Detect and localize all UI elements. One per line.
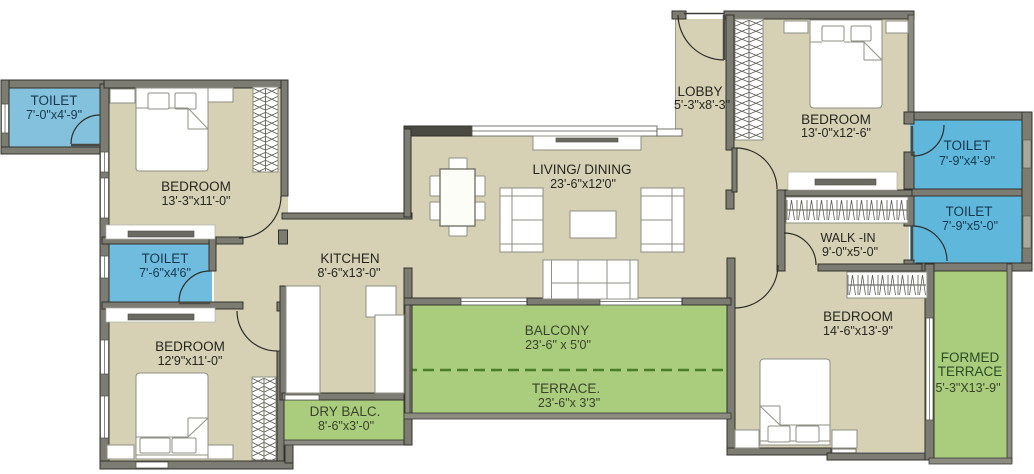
svg-text:23'-6" x 5'0": 23'-6" x 5'0" [525, 338, 591, 352]
svg-text:KITCHEN: KITCHEN [320, 251, 379, 266]
svg-text:23'-6"x 3'3": 23'-6"x 3'3" [538, 396, 600, 410]
svg-text:7'-0"x4'-9": 7'-0"x4'-9" [26, 108, 82, 122]
svg-text:8'-6"x3'-0": 8'-6"x3'-0" [318, 419, 374, 433]
svg-text:7'-6"x4'6": 7'-6"x4'6" [139, 266, 191, 280]
svg-text:12'9"x11'-0": 12'9"x11'-0" [158, 354, 223, 368]
svg-text:BEDROOM: BEDROOM [823, 309, 893, 324]
svg-text:BEDROOM: BEDROOM [155, 339, 225, 354]
svg-text:BEDROOM: BEDROOM [161, 179, 231, 194]
svg-text:TOILET: TOILET [141, 251, 188, 266]
svg-text:8'-6"x13'-0": 8'-6"x13'-0" [318, 266, 381, 280]
svg-text:DRY BALC.: DRY BALC. [310, 404, 381, 419]
svg-text:LOBBY: LOBBY [677, 84, 722, 99]
svg-text:BALCONY: BALCONY [525, 323, 590, 338]
svg-text:5'-3"x8'-3": 5'-3"x8'-3" [674, 98, 730, 112]
svg-text:13'-3"x11'-0": 13'-3"x11'-0" [161, 194, 230, 208]
svg-text:LIVING/ DINING: LIVING/ DINING [532, 162, 631, 177]
svg-text:TOILET: TOILET [30, 93, 77, 108]
svg-text:TERRACE: TERRACE [938, 364, 1003, 379]
svg-text:TOILET: TOILET [945, 204, 992, 219]
svg-text:23'-6"x12'0": 23'-6"x12'0" [550, 177, 616, 191]
svg-text:7'-9"x5'-0": 7'-9"x5'-0" [942, 219, 998, 233]
svg-text:BEDROOM: BEDROOM [801, 112, 871, 127]
svg-text:9'-0"x5'-0": 9'-0"x5'-0" [822, 245, 878, 259]
svg-text:7'-9"x4'-9": 7'-9"x4'-9" [939, 154, 995, 168]
svg-text:5'-3"X13'-9": 5'-3"X13'-9" [935, 381, 1000, 395]
svg-text:TERRACE.: TERRACE. [532, 381, 600, 396]
svg-text:FORMED: FORMED [941, 350, 1000, 365]
svg-text:14'-6"x13'-9": 14'-6"x13'-9" [823, 324, 893, 338]
svg-text:WALK -IN: WALK -IN [820, 231, 875, 245]
svg-text:13'-0"x12'-6": 13'-0"x12'-6" [801, 126, 871, 140]
svg-text:TOILET: TOILET [943, 138, 990, 153]
